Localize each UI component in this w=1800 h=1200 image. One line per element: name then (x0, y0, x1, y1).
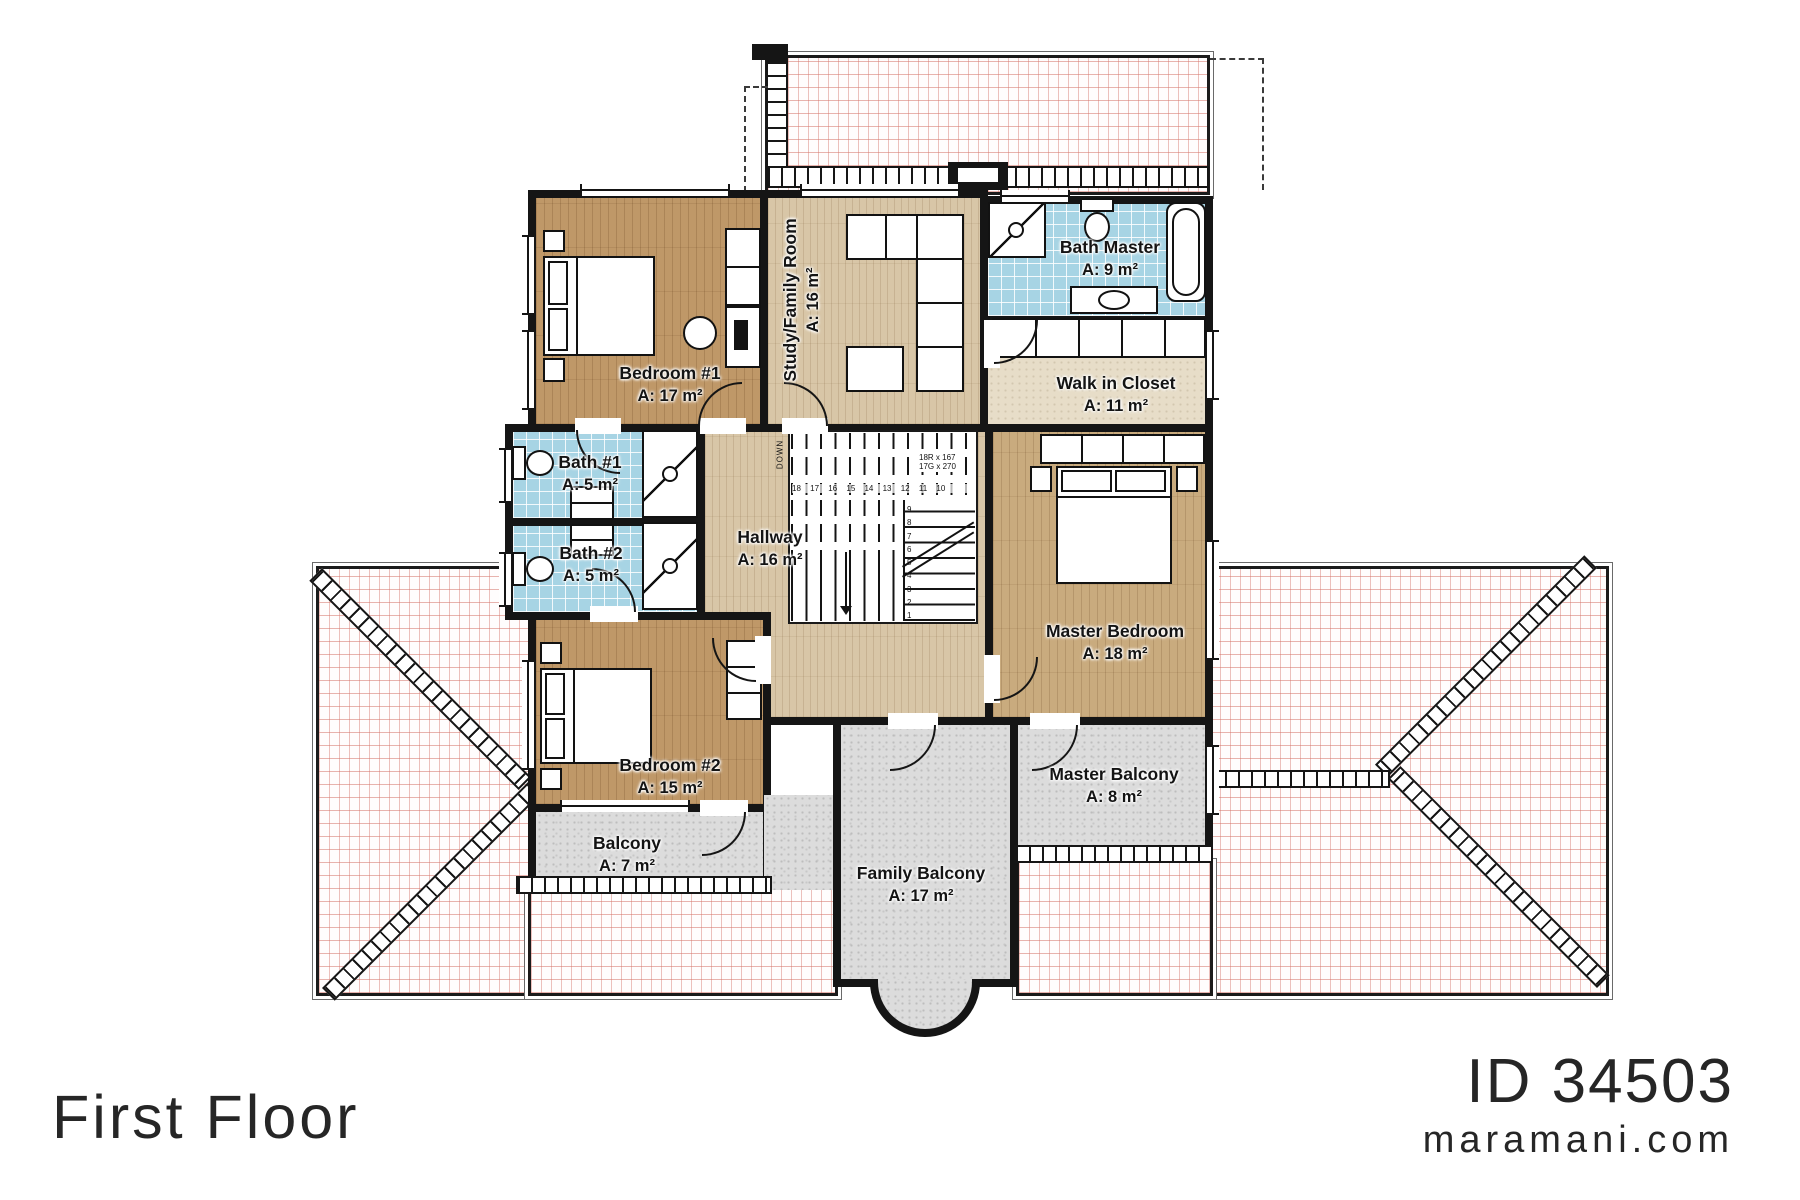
shower-head-icon (1008, 222, 1024, 238)
window (522, 660, 534, 770)
top-roof-dashed-outline-left (744, 86, 768, 192)
shower-head-icon (662, 558, 678, 574)
room-area: A: 15 m² (619, 777, 720, 800)
window (580, 184, 730, 196)
window (522, 235, 534, 315)
pillow (1061, 470, 1112, 492)
bottom-right-roof (1016, 862, 1213, 996)
nightstand (1030, 466, 1052, 492)
master-balcony-railing (1014, 845, 1213, 863)
website: maramani.com (1423, 1119, 1734, 1162)
room-name: Master Balcony (1049, 764, 1178, 784)
room-area: A: 7 m² (593, 855, 661, 878)
bathtub-basin (1172, 208, 1200, 296)
room-name: Hallway (737, 527, 802, 547)
window (499, 448, 511, 503)
blanket-line (1058, 496, 1170, 498)
room-label-bedroom-1: Bedroom #1 A: 17 m² (619, 362, 720, 408)
room-label-hallway: Hallway A: 16 m² (737, 526, 802, 572)
window (1207, 330, 1219, 400)
stairs-down-label: DOWN (776, 435, 785, 475)
room-area: A: 18 m² (1046, 643, 1184, 666)
pillow (548, 308, 568, 351)
sofa-chaise (846, 346, 904, 392)
pillow (545, 718, 565, 759)
room-family-balcony (833, 717, 1018, 987)
room-label-bath-master: Bath Master A: 9 m² (1060, 236, 1160, 282)
room-name: Bedroom #2 (619, 755, 720, 775)
vanity-basin (1098, 290, 1130, 310)
door-opening (755, 636, 771, 684)
blanket-line (573, 670, 575, 762)
room-name: Bedroom #1 (619, 363, 720, 383)
pillow (1115, 470, 1166, 492)
room-name: Master Bedroom (1046, 621, 1184, 641)
top-roof-ridge-left (766, 60, 788, 170)
family-balcony-apse (870, 979, 980, 1037)
master-wardrobe (1040, 434, 1205, 464)
window (522, 330, 534, 410)
room-area: A: 8 m² (1049, 786, 1178, 809)
room-name: Family Balcony (857, 863, 985, 883)
bottom-left-roof (528, 890, 838, 996)
window (1000, 190, 1070, 202)
wardrobe (725, 228, 761, 306)
room-name: Bath #1 (558, 452, 621, 472)
balcony-link-terrace (764, 795, 840, 890)
room-label-balcony: Balcony A: 7 m² (593, 832, 661, 878)
window (499, 552, 511, 607)
room-label-walk-in-closet: Walk in Closet A: 11 m² (1057, 372, 1176, 418)
room-name: Balcony (593, 833, 661, 853)
nightstand (543, 358, 565, 382)
nightstand (540, 768, 562, 790)
room-area: A: 17 m² (619, 385, 720, 408)
nightstand (543, 230, 565, 252)
stairs-direction-arrow-head (840, 606, 852, 615)
toilet-tank (512, 552, 526, 586)
blanket-line (576, 258, 578, 354)
window (1207, 745, 1219, 815)
room-area: A: 16 m² (737, 549, 802, 572)
room-name: Bath #2 (559, 543, 622, 563)
nightstand (1176, 466, 1198, 492)
nightstand (540, 642, 562, 664)
room-label-bath-1: Bath #1 A: 5 m² (558, 451, 621, 497)
pillow (548, 261, 568, 305)
toilet-bowl (526, 556, 554, 582)
floor-title: First Floor (52, 1082, 360, 1152)
room-area: A: 11 m² (1057, 395, 1176, 418)
toilet-tank (512, 446, 526, 480)
room-label-family-balcony: Family Balcony A: 17 m² (857, 862, 985, 908)
roof-corner-step (752, 44, 788, 60)
stairs-dimension-line1: 18R x 167 (919, 453, 956, 462)
desk-chair (683, 316, 717, 350)
room-area: A: 16 m² (802, 218, 825, 381)
room-area: A: 17 m² (857, 885, 985, 908)
stairs-return-run (791, 500, 903, 621)
plan-id: ID 34503 (1423, 1046, 1734, 1117)
room-label-study-family: Study/Family Room A: 16 m² (779, 218, 825, 381)
room-name: Bath Master (1060, 237, 1160, 257)
toilet-tank (1080, 198, 1114, 212)
room-name: Walk in Closet (1057, 373, 1176, 393)
stairs-direction-arrow-shaft (845, 552, 847, 608)
sofa-right-section (916, 214, 964, 392)
room-label-bedroom-2: Bedroom #2 A: 15 m² (619, 754, 720, 800)
top-roof-dashed-outline-right (1210, 58, 1264, 190)
room-name: Study/Family Room (780, 218, 800, 381)
toilet-bowl (526, 450, 554, 476)
window (800, 184, 960, 196)
sliding-door-window (560, 800, 690, 812)
stairs-dimension-line2: 17G x 270 (919, 462, 956, 471)
plan-id-block: ID 34503 maramani.com (1423, 1046, 1734, 1162)
stairs-tread-numbers-upper: 18 17 16 15 14 13 12 11 10 (792, 484, 974, 493)
pillow (545, 673, 565, 715)
room-area: A: 9 m² (1060, 259, 1160, 282)
room-area: A: 5 m² (559, 565, 622, 588)
right-roof-horizontal-ridge (1210, 770, 1390, 788)
left-roof-wing (316, 566, 534, 996)
shower-head-icon (662, 466, 678, 482)
room-label-master-bedroom: Master Bedroom A: 18 m² (1046, 620, 1184, 666)
stairs-dimension-note: 18R x 167 17G x 270 (918, 452, 957, 472)
window (1207, 540, 1219, 660)
room-area: A: 5 m² (558, 474, 621, 497)
chimney-flue (958, 168, 998, 182)
computer-monitor (734, 320, 748, 350)
floor-plan-canvas: 18 17 16 15 14 13 12 11 10 9 8 7 6 5 4 3… (0, 0, 1800, 1200)
room-label-master-balcony: Master Balcony A: 8 m² (1049, 763, 1178, 809)
room-label-bath-2: Bath #2 A: 5 m² (559, 542, 622, 588)
balcony-railing (516, 876, 772, 894)
